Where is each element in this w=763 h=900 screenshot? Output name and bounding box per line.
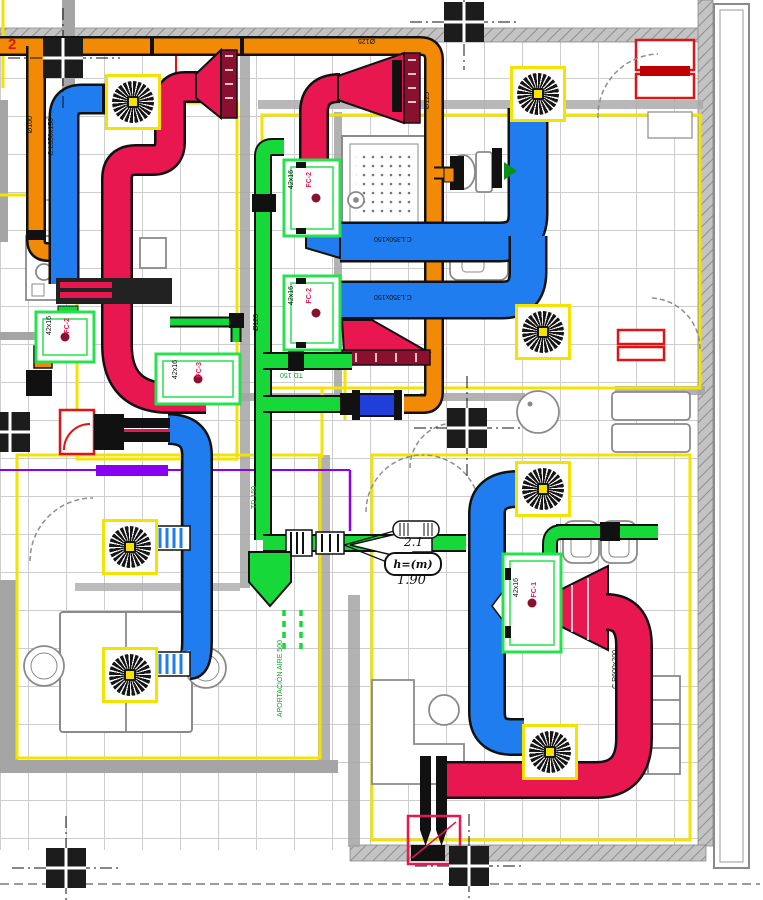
fcu-size-label: 42x16 [172,360,179,379]
supply-air-note: APORTACIÓN AIRE 500 [277,640,284,717]
fcu-size-label: 42x16 [513,578,520,597]
fcu-size-label: 42x16 [46,316,53,335]
drop-value: 2.1 [404,536,423,548]
diffuser-swirl-icon [112,81,154,123]
duct-label-orange-top: Ø125 [358,37,375,44]
diffuser-swirl-icon [522,468,564,510]
fcu-tag-label: FC-2 [64,318,71,334]
fcu-tag-label: FC-3 [196,362,203,378]
section-mark: 2 [8,36,16,53]
swirl-diffuser [105,74,161,130]
duct-label-blue-topleft: C.L350x150 [48,118,55,156]
duct-label-orange-riser: Ø125 [424,92,431,109]
column-marker [0,412,52,452]
duct-label-green-lower: TD 150 [251,486,258,509]
fcu-tag-label: FC-1 [531,582,538,598]
swirl-diffuser [102,647,158,703]
fcu-1 [503,554,561,652]
fcu-size-label: 42x16 [288,170,295,189]
diffuser-swirl-icon [109,654,151,696]
column-marker [12,816,122,900]
duct-label-green-branch: TD 150 [280,371,303,378]
swirl-diffuser [510,66,566,122]
diffuser-swirl-icon [529,731,571,773]
duct-label-green-riser: Ø125 [253,314,260,331]
duct-label-blue-run-upper: C.L350x150 [374,235,412,242]
fcu-tag-label: FC-2 [306,172,313,188]
height-value: 1.90 [397,574,426,587]
duct-label-blue-run-lower: C.L350x150 [374,293,412,300]
diffuser-swirl-icon [517,73,559,115]
swirl-diffuser [522,724,578,780]
diffuser-swirl-icon [522,311,564,353]
swirl-diffuser [515,304,571,360]
floor-plan-drawing [0,0,763,900]
fcu-size-label: 42x16 [288,286,295,305]
purple-system-line [0,465,350,531]
diffuser-swirl-icon [109,526,151,568]
duct-label-orange-left: Ø100 [27,116,34,133]
swirl-diffuser [102,519,158,575]
duct-label-red-main: C.R600x200 [612,650,619,689]
hvac-duct-plan: Ø125 Ø100 C.L350x150 Ø125 C.L350x150 C.L… [0,0,763,900]
swirl-diffuser [515,461,571,517]
fcu-tag-label: FC-2 [306,288,313,304]
